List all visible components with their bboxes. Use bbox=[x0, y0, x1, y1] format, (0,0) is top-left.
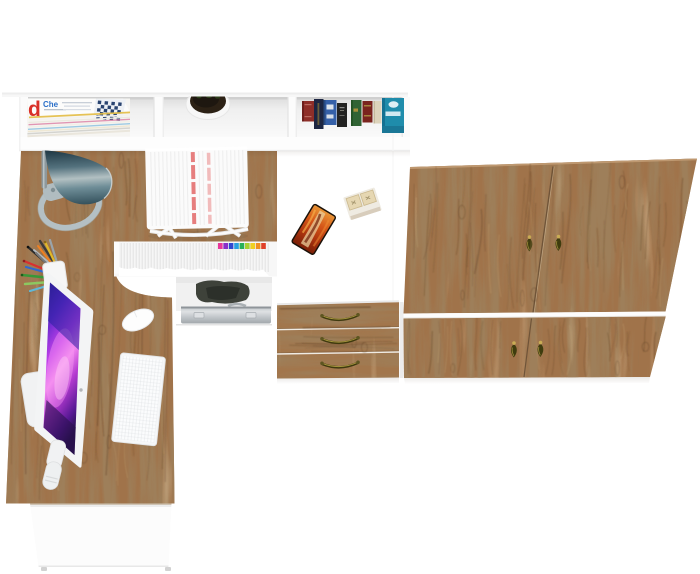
svg-text:Che: Che bbox=[43, 100, 59, 109]
